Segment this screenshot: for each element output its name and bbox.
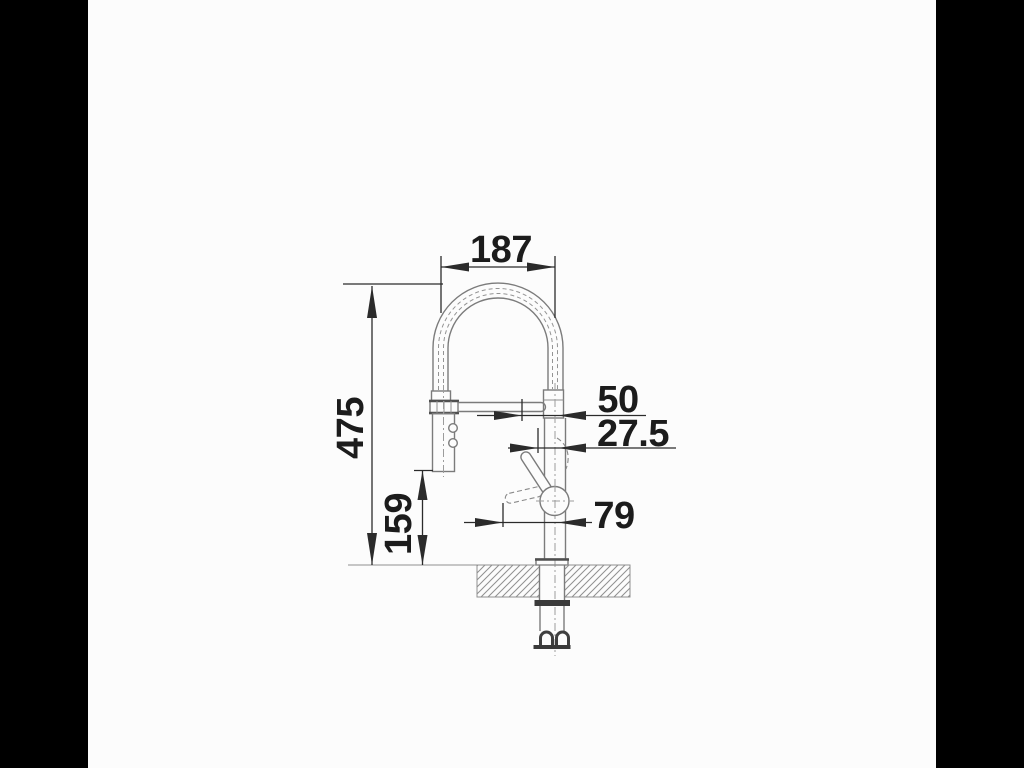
mounting-shank: [535, 565, 571, 606]
mounting-nut: [535, 600, 571, 606]
dim-label-159: 159: [378, 493, 420, 555]
dimension-offset-27-5: 27.5: [508, 413, 676, 455]
screenshot-stage: 187 475 159 50: [0, 0, 1024, 768]
dim-label-79: 79: [593, 495, 634, 537]
faucet-dimension-diagram: 187 475 159 50: [0, 0, 1024, 768]
spray-head: [433, 385, 458, 477]
dimension-outlet-height-159: 159: [378, 471, 433, 566]
spout-arm: [458, 403, 546, 412]
countertop-section: [348, 565, 630, 597]
dimension-arc-width-187: 187: [441, 229, 555, 318]
dim-label-27-5: 27.5: [597, 413, 669, 455]
dim-label-475: 475: [330, 397, 372, 459]
spout-spring-arc: [433, 283, 563, 391]
dim-label-187: 187: [470, 229, 532, 271]
connection-hoses: [534, 606, 571, 649]
base-flange: [535, 559, 569, 565]
spout-body-coupling: [544, 390, 564, 418]
